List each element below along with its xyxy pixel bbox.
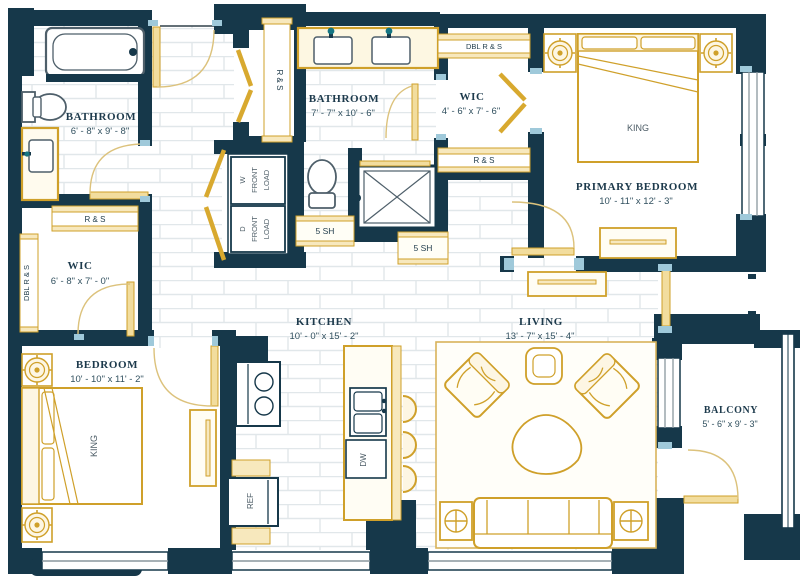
niche-door: [662, 270, 670, 326]
rs-label-wic-primary: R & S: [474, 156, 495, 165]
sofa: [474, 498, 612, 548]
double-vanity: [298, 28, 438, 68]
ref-label: REF: [246, 493, 255, 509]
dbl-rs-label-wic-primary: DBL R & S: [466, 42, 502, 51]
range: [236, 362, 280, 426]
dbl-rs-label-wic-main: DBL R & S: [22, 265, 31, 301]
bathroom-main-dims: 6' - 8" x 9' - 8": [71, 126, 129, 137]
side-table-square: [526, 348, 562, 384]
dresser-primary: [600, 228, 676, 258]
svg-text:FRONT: FRONT: [250, 216, 259, 242]
kitchen-counter-dark: [236, 336, 268, 362]
hall-right-floor: [440, 178, 530, 258]
end-table-left: [440, 502, 472, 540]
king-label-primary: KING: [627, 123, 649, 133]
media-console: [528, 272, 606, 296]
svg-text:W: W: [238, 176, 247, 184]
counter-segment-1: [232, 460, 270, 476]
bathtub: [46, 28, 144, 82]
corridor-floor: [150, 146, 222, 348]
svg-text:LOAD: LOAD: [262, 218, 271, 239]
dw-label: DW: [359, 453, 368, 467]
window-primary-bedroom: [742, 72, 764, 216]
dresser-bedroom: [190, 410, 216, 486]
window-bedroom: [42, 552, 168, 570]
wic-primary-dims: 4' - 6" x 7' - 6": [442, 106, 500, 117]
window-kitchen: [232, 552, 370, 570]
window-living: [428, 552, 612, 570]
primary-bedroom-dims: 10' - 11" x 12' - 3": [599, 196, 673, 207]
bathroom-primary-dims: 7' - 7" x 10' - 6": [311, 108, 375, 119]
toilet-main: [22, 92, 66, 122]
primary-bedroom-name: PRIMARY BEDROOM: [576, 181, 698, 193]
bar-stools: [403, 396, 416, 492]
kitchen-name: KITCHEN: [296, 316, 352, 328]
kitchen-dims: 10' - 0" x 15' - 2": [290, 331, 359, 342]
balcony-dims: 5' - 6" x 9' - 3": [702, 419, 757, 429]
kitchen-sink: [350, 388, 386, 436]
bathroom-main-name: BATHROOM: [66, 111, 137, 123]
svg-text:D: D: [238, 226, 247, 232]
living-dims: 13' - 7" x 15' - 4": [506, 331, 575, 342]
living-name: LIVING: [519, 316, 563, 328]
wic-main-dims: 6' - 8" x 7' - 0": [51, 276, 109, 287]
bathroom-primary-name: BATHROOM: [309, 93, 380, 105]
vanity-main: [22, 128, 58, 200]
sh5-label-2: 5 SH: [414, 243, 433, 253]
end-table-right: [614, 502, 648, 540]
balcony-name: BALCONY: [704, 405, 758, 416]
rs-label-wic-main: R & S: [85, 215, 106, 224]
balcony-railing: [782, 334, 794, 528]
king-bed-bedroom: [22, 388, 142, 504]
foyer-floor: [152, 26, 234, 150]
rs-label-linen: R & S: [275, 70, 284, 91]
window-living-balcony: [658, 358, 680, 428]
svg-text:FRONT: FRONT: [250, 167, 259, 193]
counter-segment-2: [232, 528, 270, 544]
svg-text:LOAD: LOAD: [262, 169, 271, 190]
king-bed-primary: [578, 34, 698, 162]
bedroom-name: BEDROOM: [76, 359, 138, 371]
bedroom-dims: 10' - 10" x 11' - 2": [70, 374, 144, 385]
sh5-label-1: 5 SH: [316, 226, 335, 236]
wic-main-name: WIC: [67, 260, 92, 272]
wic-primary-name: WIC: [459, 91, 484, 103]
toilet-primary: [308, 160, 336, 208]
shower: [353, 161, 436, 228]
floor-plan-svg: BATHROOM 6' - 8" x 9' - 8" WIC 6' - 8" x…: [0, 0, 800, 578]
king-label-bedroom: KING: [89, 435, 99, 457]
floor-plan: BATHROOM 6' - 8" x 9' - 8" WIC 6' - 8" x…: [0, 0, 800, 578]
